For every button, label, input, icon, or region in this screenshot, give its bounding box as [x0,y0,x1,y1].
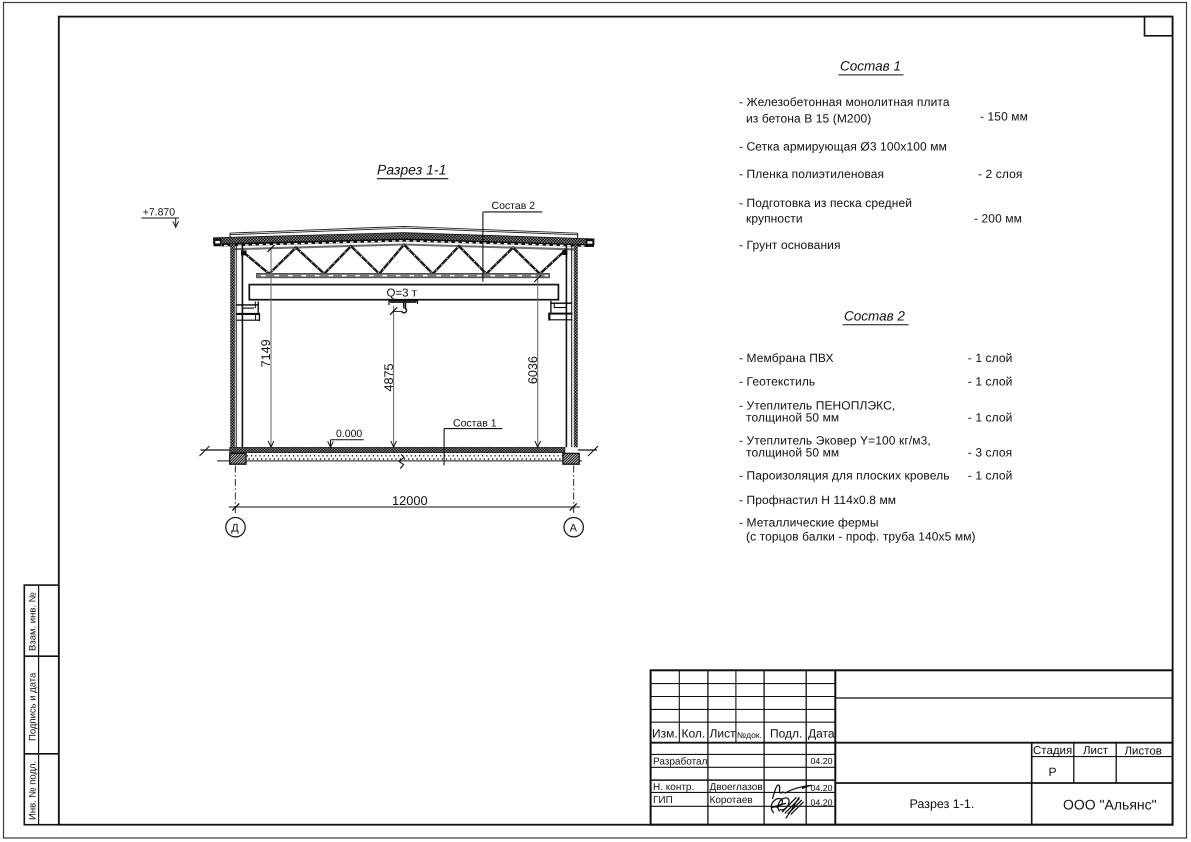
svg-text:Изм.: Изм. [652,726,678,740]
svg-text:из бетона В 15 (М200): из бетона В 15 (М200) [746,111,871,125]
svg-text:крупности: крупности [746,212,803,226]
svg-text:7149: 7149 [259,339,273,367]
svg-text:- 1 слой: - 1 слой [968,411,1013,425]
svg-text:ГИП: ГИП [653,795,673,806]
svg-text:- Сетка армирующая Ø3 100x100: - Сетка армирующая Ø3 100x100 мм [739,140,947,154]
svg-text:А: А [570,522,578,534]
svg-text:- Мембрана ПВХ: - Мембрана ПВХ [739,351,834,365]
svg-text:- 3 слоя: - 3 слоя [968,446,1012,460]
svg-text:Двоеглазов: Двоеглазов [710,782,763,793]
svg-text:- 200 мм: - 200 мм [974,212,1022,226]
svg-text:04.20: 04.20 [811,756,833,766]
svg-text:толщиной 50 мм: толщиной 50 мм [746,446,839,460]
svg-text:Листов: Листов [1125,746,1162,758]
svg-text:Состав 2: Состав 2 [492,200,536,212]
svg-text:- 1 слой: - 1 слой [968,468,1013,482]
svg-text:- 2 слоя: - 2 слоя [978,167,1022,181]
svg-text:Подпись и дата: Подпись и дата [27,672,38,741]
svg-text:ООО "Альянс": ООО "Альянс" [1063,797,1157,813]
svg-text:Стадия: Стадия [1033,745,1072,757]
svg-text:Взам. инв. №: Взам. инв. № [27,592,38,651]
svg-text:Дата: Дата [808,726,835,740]
svg-text:04.20: 04.20 [811,797,833,807]
svg-text:Кол.: Кол. [682,726,706,740]
svg-text:толщиной 50 мм: толщиной 50 мм [746,411,839,425]
svg-text:Лист: Лист [1083,745,1109,757]
svg-text:- Пленка полиэтиленовая: - Пленка полиэтиленовая [739,167,884,181]
svg-text:+7.870: +7.870 [143,206,176,218]
svg-text:- Пароизоляция для плоских кро: - Пароизоляция для плоских кровель [739,468,950,482]
svg-text:Состав 1: Состав 1 [840,59,901,74]
svg-text:Лист: Лист [710,726,737,740]
svg-text:- Геотекстиль: - Геотекстиль [739,374,815,388]
svg-text:- 150 мм: - 150 мм [980,109,1028,123]
svg-text:Д: Д [231,522,239,534]
svg-text:- Профнастил Н 114x0.8 мм: - Профнастил Н 114x0.8 мм [739,493,896,507]
svg-text:04.20: 04.20 [811,783,833,793]
svg-text:- 1 слой: - 1 слой [968,374,1013,388]
svg-text:- Подготовка из песка средней: - Подготовка из песка средней [739,196,912,210]
svg-text:Коротаев: Коротаев [710,795,753,806]
svg-text:6036: 6036 [526,356,540,384]
svg-text:Разработал: Разработал [653,757,708,768]
svg-text:Состав 2: Состав 2 [844,309,905,324]
svg-text:- Металлические фермы: - Металлические фермы [739,516,879,530]
svg-text:4875: 4875 [382,363,396,391]
svg-text:Q=3 т: Q=3 т [387,288,418,300]
svg-text:Подл.: Подл. [770,726,802,740]
svg-text:Р: Р [1049,765,1057,779]
svg-text:Разрез 1-1: Разрез 1-1 [377,162,446,178]
svg-text:Состав 1: Состав 1 [453,417,497,429]
svg-text:(с торцов балки - проф. труба: (с торцов балки - проф. труба 140x5 мм) [746,529,976,543]
svg-text:№док.: №док. [737,730,762,740]
svg-text:- 1 слой: - 1 слой [968,351,1013,365]
svg-text:- Железобетонная монолитная п: - Железобетонная монолитная плита [739,95,950,109]
svg-text:0.000: 0.000 [336,428,362,440]
svg-text:Инв. № подл.: Инв. № подл. [27,761,38,820]
svg-text:- Грунт основания: - Грунт основания [739,238,841,252]
svg-text:Н. контр.: Н. контр. [653,782,694,793]
svg-text:12000: 12000 [392,493,428,508]
svg-text:Разрез 1-1.: Разрез 1-1. [910,797,975,811]
